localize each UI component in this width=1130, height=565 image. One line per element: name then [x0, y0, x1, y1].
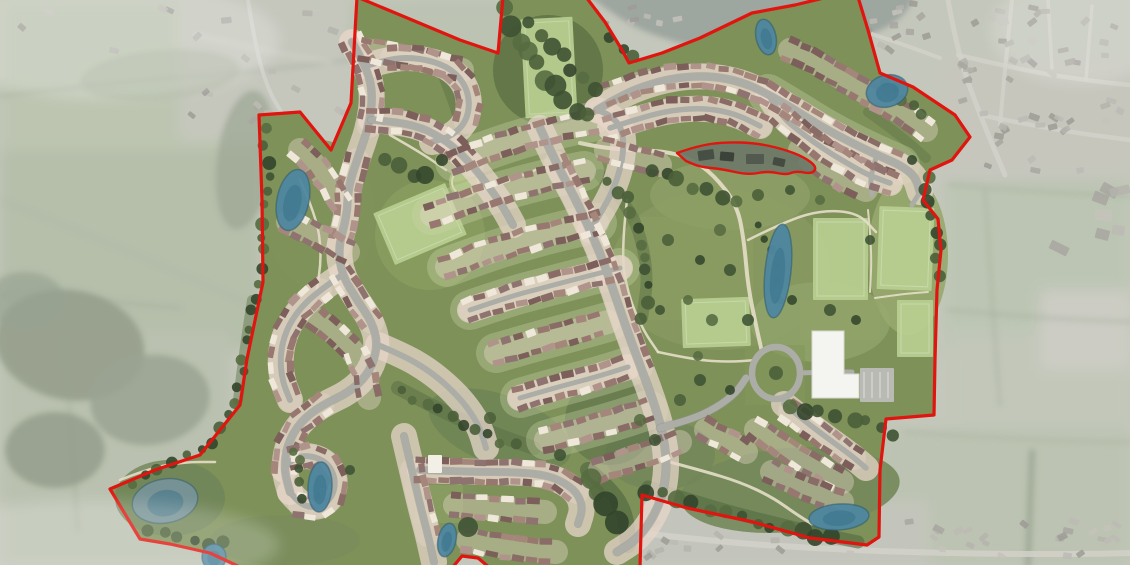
masterplan-map	[0, 0, 1130, 565]
masterplan-screenshot	[0, 0, 1130, 565]
